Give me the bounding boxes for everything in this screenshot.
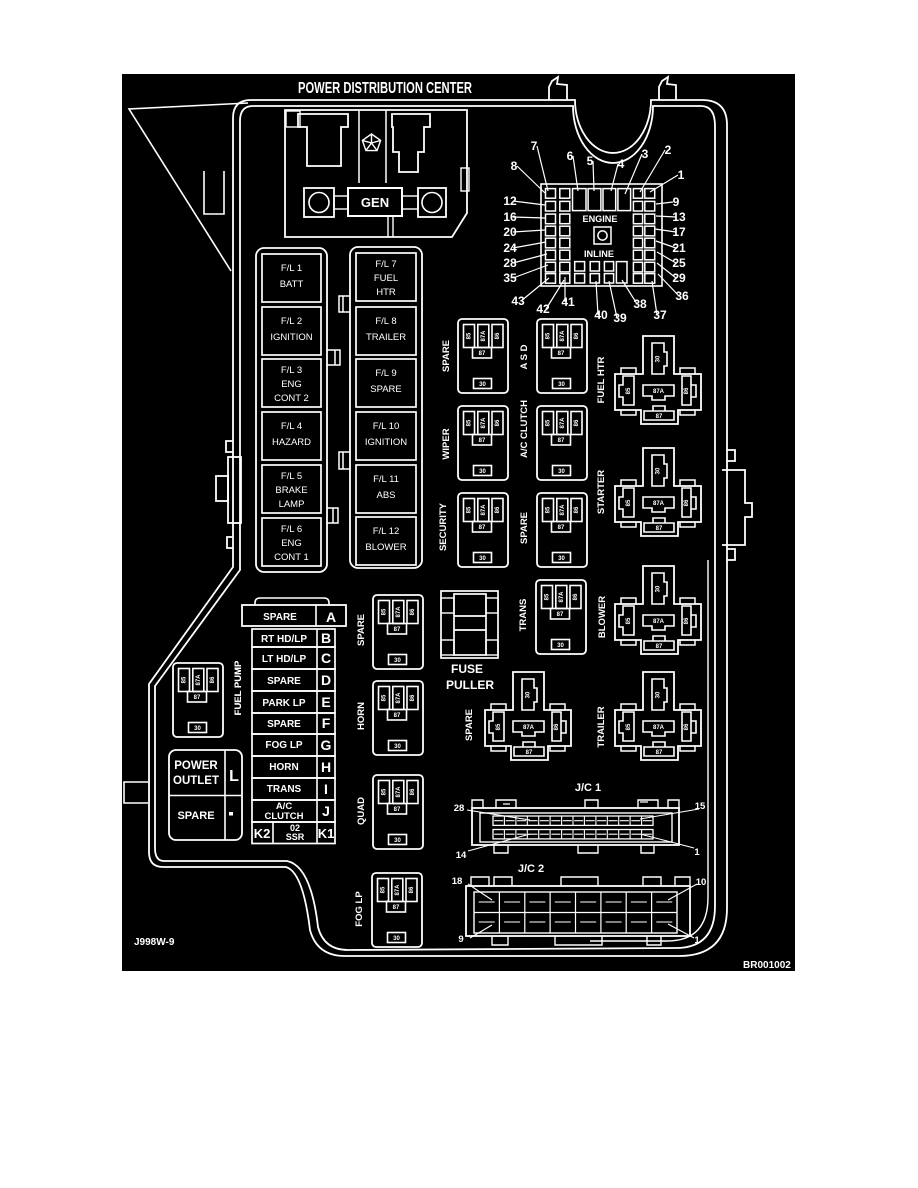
svg-text:21: 21	[672, 241, 686, 255]
svg-text:POWER: POWER	[174, 760, 218, 772]
svg-text:24: 24	[503, 241, 517, 255]
svg-text:38: 38	[633, 297, 647, 311]
svg-text:8: 8	[511, 159, 518, 173]
svg-text:1: 1	[694, 847, 700, 858]
svg-text:3: 3	[642, 147, 649, 161]
svg-text:D: D	[321, 672, 331, 688]
svg-text:F/L 7: F/L 7	[375, 259, 396, 270]
svg-text:F/L 3: F/L 3	[281, 365, 302, 376]
svg-text:20: 20	[503, 225, 517, 239]
svg-text:FOG LP: FOG LP	[354, 891, 365, 927]
svg-text:FUSE: FUSE	[451, 662, 483, 676]
svg-text:BR001002: BR001002	[743, 960, 791, 971]
svg-text:B: B	[321, 630, 331, 646]
svg-text:5: 5	[587, 154, 594, 168]
svg-text:SPARE: SPARE	[177, 810, 214, 822]
svg-text:F/L 9: F/L 9	[375, 368, 396, 379]
svg-text:L: L	[229, 768, 239, 785]
svg-text:F/L 2: F/L 2	[281, 316, 302, 327]
svg-text:ENG: ENG	[281, 538, 302, 549]
svg-text:ABS: ABS	[376, 490, 395, 501]
svg-text:1: 1	[678, 168, 685, 182]
svg-text:F/L 6: F/L 6	[281, 524, 302, 535]
svg-text:POWER DISTRIBUTION CENTER: POWER DISTRIBUTION CENTER	[298, 80, 472, 97]
svg-text:43: 43	[511, 294, 525, 308]
svg-text:FOG LP: FOG LP	[265, 740, 303, 751]
svg-text:42: 42	[536, 302, 550, 316]
svg-text:9: 9	[458, 934, 463, 945]
svg-text:PULLER: PULLER	[446, 678, 494, 692]
svg-text:SPARE: SPARE	[356, 614, 367, 646]
svg-text:LT HD/LP: LT HD/LP	[262, 654, 307, 665]
svg-text:LAMP: LAMP	[279, 499, 305, 510]
svg-text:PARK LP: PARK LP	[262, 698, 305, 709]
svg-text:15: 15	[695, 801, 706, 812]
svg-text:BATT: BATT	[280, 279, 304, 290]
svg-text:QUAD: QUAD	[356, 797, 367, 825]
svg-text:J/C 2: J/C 2	[518, 863, 544, 875]
svg-text:36: 36	[675, 289, 689, 303]
svg-text:GEN: GEN	[361, 195, 389, 210]
svg-text:CONT 1: CONT 1	[274, 552, 309, 563]
svg-text:37: 37	[653, 308, 667, 322]
svg-text:14: 14	[456, 850, 467, 861]
svg-text:OUTLET: OUTLET	[173, 775, 219, 787]
svg-text:F/L 5: F/L 5	[281, 471, 302, 482]
svg-text:18: 18	[452, 876, 463, 887]
svg-text:39: 39	[613, 311, 627, 325]
svg-text:ENGINE: ENGINE	[583, 214, 618, 225]
svg-text:F/L 4: F/L 4	[281, 421, 302, 432]
svg-text:FUEL HTR: FUEL HTR	[596, 356, 607, 403]
svg-text:SPARE: SPARE	[267, 676, 301, 687]
svg-text:25: 25	[672, 256, 686, 270]
svg-text:SPARE: SPARE	[267, 719, 301, 730]
svg-text:BRAKE: BRAKE	[275, 485, 307, 496]
svg-text:28: 28	[454, 803, 465, 814]
svg-text:13: 13	[672, 210, 686, 224]
svg-text:K2: K2	[254, 826, 271, 841]
svg-text:IGNITION: IGNITION	[270, 332, 312, 343]
svg-text:H: H	[321, 759, 331, 775]
svg-text:HORN: HORN	[356, 702, 367, 730]
svg-text:CLUTCH: CLUTCH	[264, 811, 303, 822]
svg-text:SPARE: SPARE	[519, 512, 530, 544]
svg-text:2: 2	[665, 143, 672, 157]
svg-text:F/L 1: F/L 1	[281, 263, 302, 274]
svg-text:G: G	[321, 737, 332, 753]
svg-text:SPARE: SPARE	[464, 709, 475, 741]
svg-text:SECURITY: SECURITY	[438, 502, 449, 551]
svg-text:J: J	[322, 803, 330, 819]
svg-text:35: 35	[503, 271, 517, 285]
svg-text:HORN: HORN	[269, 762, 298, 773]
svg-text:TRANS: TRANS	[267, 784, 302, 795]
svg-text:SPARE: SPARE	[441, 340, 452, 372]
svg-text:FUEL PUMP: FUEL PUMP	[233, 660, 244, 715]
svg-text:STARTER: STARTER	[596, 470, 607, 514]
svg-text:40: 40	[594, 308, 608, 322]
svg-text:SPARE: SPARE	[263, 612, 297, 623]
svg-text:I: I	[324, 781, 328, 797]
svg-text:BLOWER: BLOWER	[597, 596, 608, 638]
svg-text:6: 6	[567, 149, 574, 163]
svg-text:TRAILER: TRAILER	[596, 706, 607, 747]
svg-text:4: 4	[618, 157, 625, 171]
svg-text:7: 7	[531, 139, 538, 153]
svg-text:TRANS: TRANS	[518, 599, 529, 632]
svg-text:HTR: HTR	[376, 287, 396, 298]
svg-text:J/C 1: J/C 1	[575, 782, 601, 794]
svg-text:1: 1	[694, 935, 700, 946]
svg-text:A S D: A S D	[519, 344, 530, 369]
svg-text:E: E	[321, 694, 330, 710]
svg-text:SSR: SSR	[286, 832, 305, 842]
svg-text:J998W-9: J998W-9	[134, 937, 175, 948]
svg-text:A/C CLUTCH: A/C CLUTCH	[519, 400, 530, 458]
svg-text:FUEL: FUEL	[374, 273, 398, 284]
svg-text:CONT 2: CONT 2	[274, 393, 309, 404]
svg-text:ENG: ENG	[281, 379, 302, 390]
svg-text:F/L 11: F/L 11	[373, 474, 399, 485]
svg-text:41: 41	[561, 295, 575, 309]
svg-text:12: 12	[503, 194, 517, 208]
svg-text:F/L 12: F/L 12	[373, 526, 400, 537]
svg-text:9: 9	[673, 195, 680, 209]
svg-text:TRAILER: TRAILER	[366, 332, 406, 343]
svg-text:K1: K1	[318, 826, 335, 841]
svg-text:SPARE: SPARE	[370, 384, 402, 395]
svg-text:C: C	[321, 650, 331, 666]
svg-text:HAZARD: HAZARD	[272, 437, 311, 448]
svg-text:RT HD/LP: RT HD/LP	[261, 634, 307, 645]
svg-text:IGNITION: IGNITION	[365, 437, 407, 448]
svg-text:WIPER: WIPER	[441, 428, 452, 459]
svg-text:10: 10	[696, 877, 707, 888]
svg-text:INLINE: INLINE	[584, 249, 614, 260]
svg-text:28: 28	[503, 256, 517, 270]
svg-text:F/L 10: F/L 10	[373, 421, 400, 432]
svg-text:17: 17	[672, 225, 686, 239]
svg-text:F/L 8: F/L 8	[375, 316, 396, 327]
svg-text:A: A	[326, 609, 336, 625]
svg-text:16: 16	[503, 210, 517, 224]
svg-text:F: F	[322, 715, 331, 731]
svg-text:BLOWER: BLOWER	[365, 542, 406, 553]
svg-text:29: 29	[672, 271, 686, 285]
